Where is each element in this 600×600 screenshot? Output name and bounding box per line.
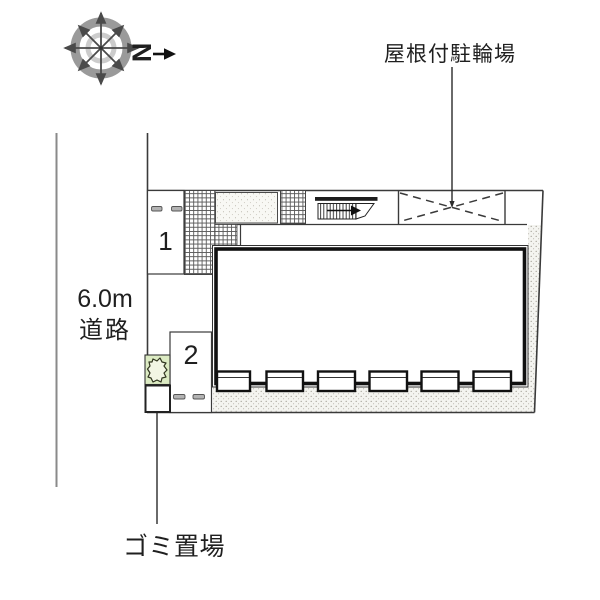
site-plan-canvas: N 屋根付駐輪場 6.0m 道路 1 2 ゴミ置場 [0, 0, 600, 600]
north-label: N [125, 43, 156, 63]
parking-dash [152, 207, 163, 212]
parking-dash [172, 207, 183, 212]
garbage-box [146, 386, 171, 413]
window [267, 372, 304, 392]
window [422, 372, 459, 392]
parking-space-1-number: 1 [147, 226, 184, 257]
window [318, 372, 355, 392]
crosshatch-strip-a [185, 191, 216, 275]
window [474, 372, 512, 392]
road-text: 道路 [68, 315, 142, 346]
staircase-icon [315, 197, 378, 219]
parking-space-2-number: 2 [170, 340, 212, 371]
ground-stipple-right [528, 225, 542, 387]
building-wall [216, 249, 525, 384]
bush-icon [145, 355, 170, 385]
road-label: 6.0m 道路 [68, 284, 142, 346]
window [217, 372, 250, 392]
north-arrow-icon [153, 48, 176, 60]
parking-dash [174, 395, 186, 400]
bicycle-parking-label: 屋根付駐輪場 [384, 38, 516, 68]
window [370, 372, 408, 392]
bicycle-parking-leader [449, 67, 454, 208]
crosshatch-strip-b [215, 225, 237, 248]
crosshatch-strip-c [281, 191, 306, 224]
garbage-label: ゴミ置場 [123, 527, 225, 563]
entrance-paving [216, 193, 278, 224]
road-width-text: 6.0m [68, 284, 142, 315]
parking-dash [193, 395, 205, 400]
